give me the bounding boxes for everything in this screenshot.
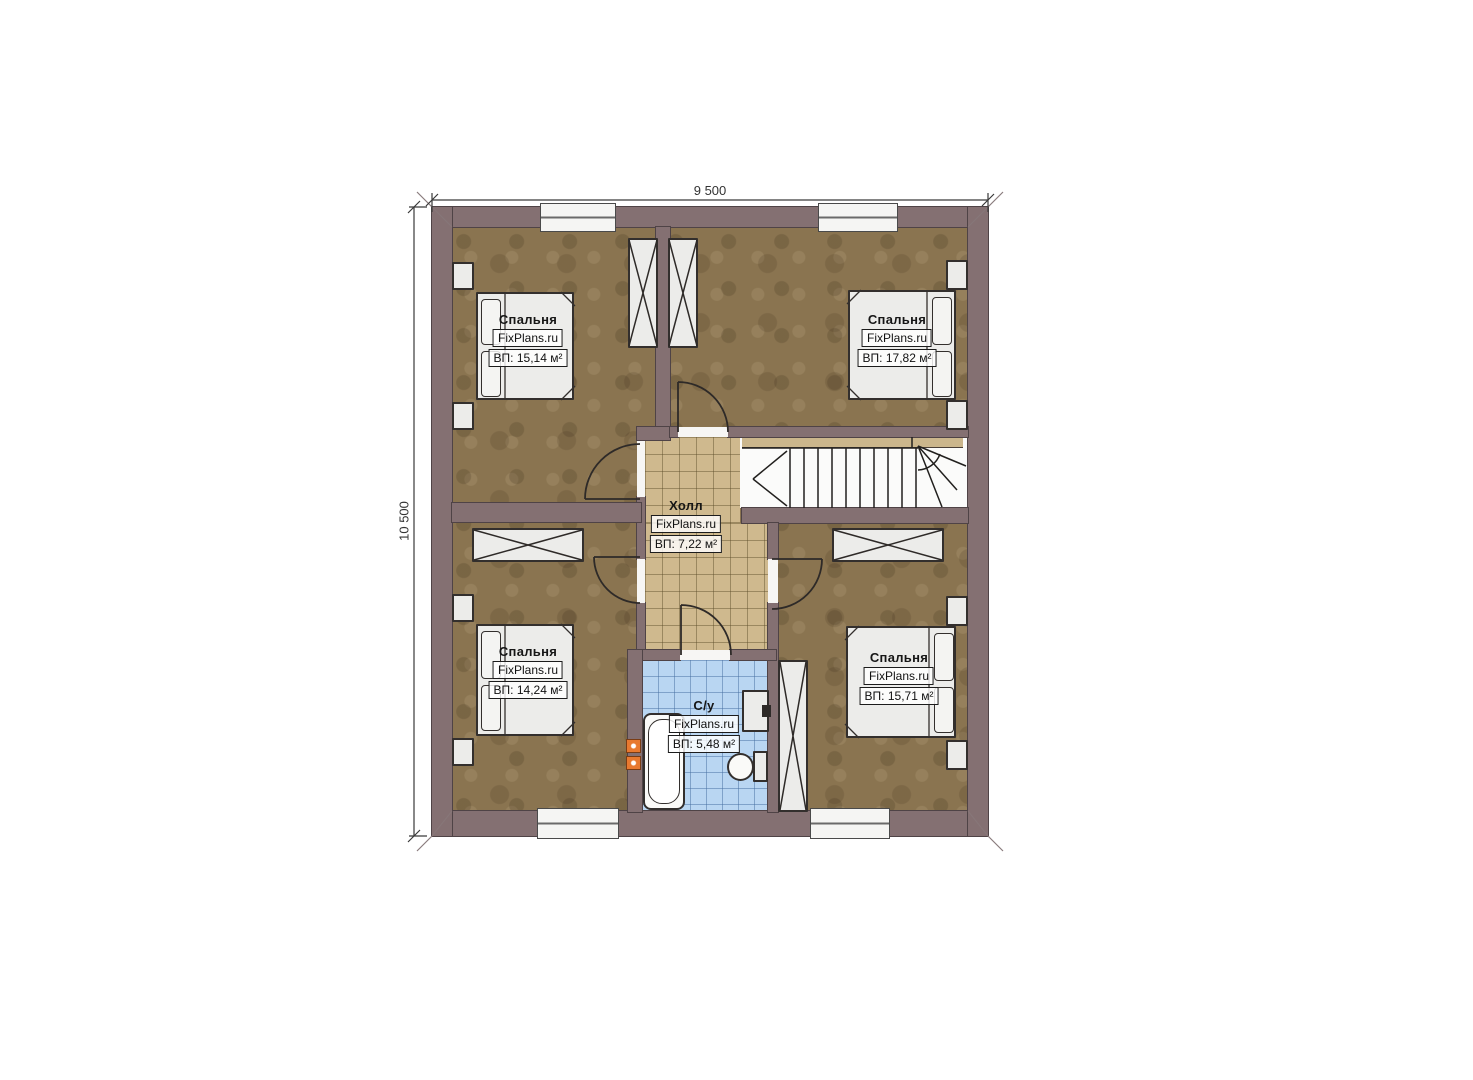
door-opening-bedroom-bl bbox=[637, 559, 645, 603]
wardrobe bbox=[668, 238, 698, 348]
label-bedroom-top-left: Спальня FixPlans.ru ВП: 15,14 м² bbox=[489, 312, 568, 367]
wall-bath-top-right bbox=[730, 650, 776, 660]
wall-exterior-top bbox=[432, 207, 988, 227]
window-bottom-left bbox=[537, 808, 619, 839]
wall-below-stairs bbox=[742, 508, 968, 523]
wall-bath-left bbox=[628, 650, 642, 812]
stair-landing bbox=[742, 437, 963, 448]
wardrobe bbox=[778, 660, 808, 812]
watermark-tag: FixPlans.ru bbox=[862, 329, 932, 347]
window-bottom-right bbox=[810, 808, 890, 839]
nightstand bbox=[452, 402, 474, 430]
wardrobe bbox=[472, 528, 584, 562]
window-top-right bbox=[818, 203, 898, 232]
room-name: Спальня bbox=[870, 650, 928, 665]
label-bedroom-bottom-left: Спальня FixPlans.ru ВП: 14,24 м² bbox=[489, 644, 568, 699]
wall-left-horizontal bbox=[452, 503, 641, 522]
room-name: Холл bbox=[669, 498, 703, 513]
sink-tap bbox=[762, 705, 771, 717]
nightstand bbox=[946, 740, 968, 770]
area-tag: ВП: 7,22 м² bbox=[650, 535, 722, 553]
dimension-width: 9 500 bbox=[694, 183, 727, 198]
room-name: Спальня bbox=[499, 644, 557, 659]
nightstand bbox=[452, 594, 474, 622]
watermark-tag: FixPlans.ru bbox=[651, 515, 721, 533]
vent-marker bbox=[626, 739, 641, 753]
label-bathroom: С/у FixPlans.ru ВП: 5,48 м² bbox=[668, 698, 740, 753]
door-opening-bedroom-tl bbox=[637, 441, 645, 497]
wall-exterior-left bbox=[432, 207, 452, 836]
room-name: Спальня bbox=[499, 312, 557, 327]
watermark-tag: FixPlans.ru bbox=[493, 329, 563, 347]
watermark-tag: FixPlans.ru bbox=[669, 715, 739, 733]
dimension-height: 10 500 bbox=[397, 501, 412, 541]
nightstand bbox=[452, 738, 474, 766]
door-opening-bedroom-tr bbox=[678, 427, 728, 437]
area-tag: ВП: 5,48 м² bbox=[668, 735, 740, 753]
nightstand bbox=[946, 260, 968, 290]
label-bedroom-bottom-right: Спальня FixPlans.ru ВП: 15,71 м² bbox=[860, 650, 939, 705]
area-tag: ВП: 14,24 м² bbox=[489, 681, 568, 699]
wall-tr-bedroom-bottom-a bbox=[670, 427, 678, 437]
floor-plan-page: Спальня FixPlans.ru ВП: 15,14 м² Спальня… bbox=[0, 0, 1473, 1080]
toilet-bowl bbox=[727, 753, 754, 781]
wall-exterior-bottom bbox=[432, 811, 988, 836]
nightstand bbox=[946, 400, 968, 430]
window-top-left bbox=[540, 203, 616, 232]
door-opening-bedroom-br bbox=[768, 559, 778, 603]
room-name: С/у bbox=[693, 698, 714, 713]
wardrobe bbox=[628, 238, 658, 348]
label-hall: Холл FixPlans.ru ВП: 7,22 м² bbox=[650, 498, 722, 553]
area-tag: ВП: 15,14 м² bbox=[489, 349, 568, 367]
room-name: Спальня bbox=[868, 312, 926, 327]
watermark-tag: FixPlans.ru bbox=[493, 661, 563, 679]
label-bedroom-top-right: Спальня FixPlans.ru ВП: 17,82 м² bbox=[858, 312, 937, 367]
nightstand bbox=[452, 262, 474, 290]
vent-marker bbox=[626, 756, 641, 770]
wall-hall-right-upper bbox=[768, 523, 778, 559]
wardrobe bbox=[832, 528, 944, 562]
wall-exterior-right bbox=[968, 207, 988, 836]
wall-tr-bedroom-bottom-b bbox=[728, 427, 968, 437]
area-tag: ВП: 17,82 м² bbox=[858, 349, 937, 367]
door-opening-bathroom bbox=[680, 650, 730, 660]
toilet-tank bbox=[753, 751, 768, 782]
area-tag: ВП: 15,71 м² bbox=[860, 687, 939, 705]
wall-hall-top-jog bbox=[637, 427, 670, 440]
nightstand bbox=[946, 596, 968, 626]
watermark-tag: FixPlans.ru bbox=[864, 667, 934, 685]
